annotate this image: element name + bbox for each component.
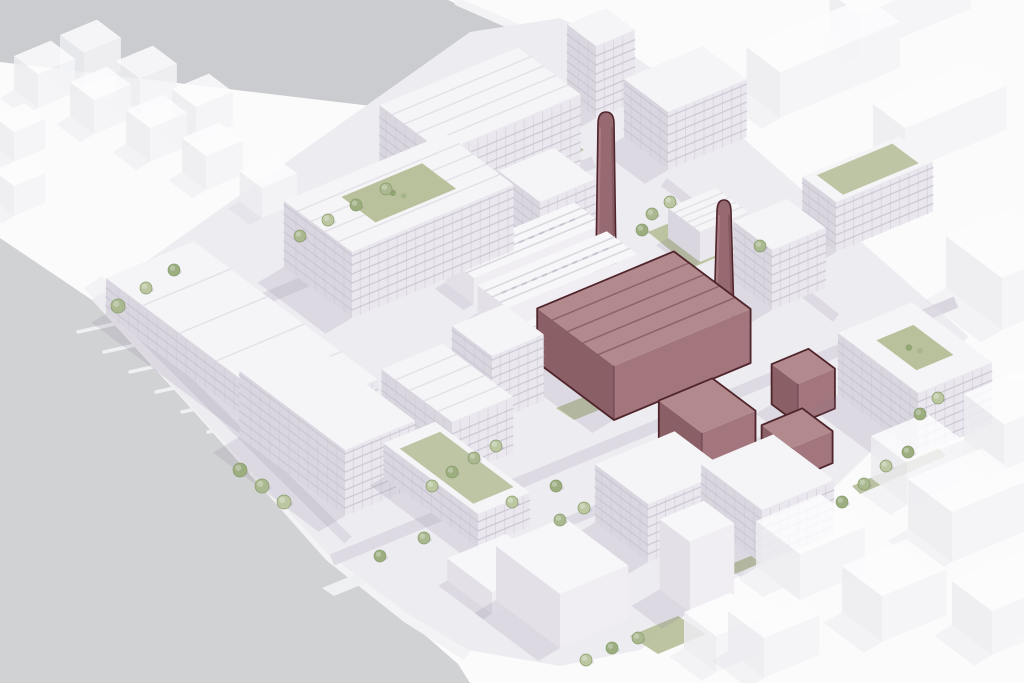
tree-highlight xyxy=(428,482,433,487)
tree-highlight xyxy=(860,480,865,485)
tree-highlight xyxy=(756,242,761,247)
tree-highlight xyxy=(448,468,453,473)
tree-highlight xyxy=(257,481,263,487)
tree-highlight xyxy=(492,442,497,447)
tree-highlight xyxy=(470,454,475,459)
masterplan-canvas xyxy=(0,0,1024,683)
tree-highlight xyxy=(838,498,843,503)
tree-highlight xyxy=(376,552,381,557)
tree-highlight xyxy=(608,644,613,649)
courtyard-tree-icon xyxy=(401,193,406,198)
masterplan-rendering xyxy=(0,0,1024,683)
courtyard-tree-icon xyxy=(917,348,922,353)
tree-highlight xyxy=(634,634,639,639)
tree-highlight xyxy=(170,266,175,271)
tree-highlight xyxy=(582,656,587,661)
tree-highlight xyxy=(882,462,887,467)
tree-highlight xyxy=(916,410,921,415)
tree-highlight xyxy=(352,201,357,206)
tree-highlight xyxy=(420,534,425,539)
courtyard-tree-icon xyxy=(906,344,912,350)
tree-highlight xyxy=(508,498,513,503)
tree-highlight xyxy=(638,226,643,231)
tree-highlight xyxy=(296,232,301,237)
tree-highlight xyxy=(648,210,653,215)
tree-highlight xyxy=(934,394,939,399)
tree-highlight xyxy=(552,482,557,487)
tree-highlight xyxy=(113,301,119,307)
tree-highlight xyxy=(666,198,671,203)
tree-highlight xyxy=(904,448,909,453)
tree-highlight xyxy=(279,497,285,503)
tree-highlight xyxy=(580,504,585,509)
tree-highlight xyxy=(142,284,147,289)
tree-highlight xyxy=(235,465,241,471)
tree-highlight xyxy=(324,216,329,221)
tree-highlight xyxy=(382,185,387,190)
tree-highlight xyxy=(556,516,561,521)
